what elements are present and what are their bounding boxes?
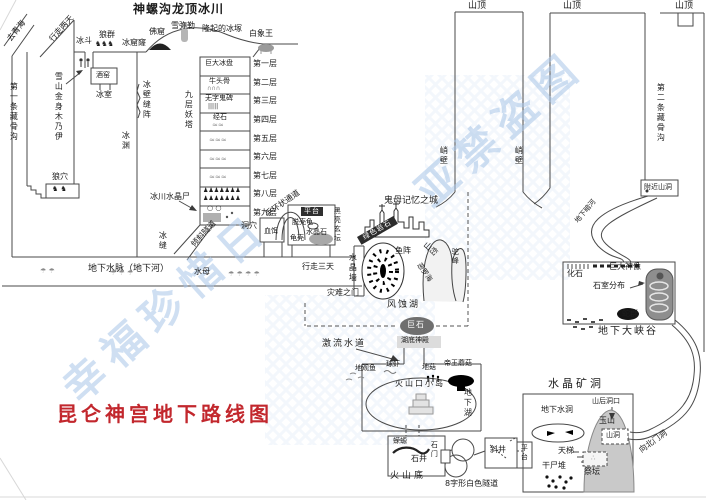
underground-lake-label: 地下湖 xyxy=(463,388,471,418)
ghost-city-label: 鬼母记忆之城 xyxy=(384,197,438,206)
floor8-icons-1: ♟♟♟♟♟♟♟ xyxy=(203,188,241,194)
altar-label: 祭坛 xyxy=(584,468,600,476)
ground-fish-label: 地观鱼 xyxy=(355,365,376,372)
floor1-item: 巨大冰盘 xyxy=(205,60,233,67)
cliff-label-1: 峭壁 xyxy=(439,146,447,166)
crater-island-label: 火山口小岛 xyxy=(395,380,445,388)
map-title: 昆仑神宫地下路线图 xyxy=(57,404,273,425)
floor3-item: 无字鬼碑 xyxy=(205,95,233,102)
shell-turtle-label: 脱壳龟 xyxy=(292,219,313,226)
jellyfish-icons-3: ☂ ☂ xyxy=(40,268,55,275)
mountain-cave-label: 山洞 xyxy=(606,432,620,439)
white-elephant-label: 白象王 xyxy=(249,30,273,38)
black-altar-label: 黑亮玄坛 xyxy=(333,207,340,243)
ice-abyss-label: 冰渊 xyxy=(121,131,129,151)
floor6-icons: ≈≈≈ xyxy=(209,156,227,163)
cirque-label: 冰斗 xyxy=(76,37,92,45)
floor6-label: 第六层 xyxy=(253,153,277,161)
lake-temple-label: 湖底神殿 xyxy=(401,337,429,344)
route-map-page: 去青海神螺沟龙顶冰川行走两天冰斗狼群♞♞♞冰窟窿佛窟雪弥勒隆起的冰塚白象王山顶山… xyxy=(0,0,706,500)
summit-label-1: 山顶 xyxy=(468,2,486,11)
jellyfish-icons-2: ☂ ☂ ☂ ☂ xyxy=(228,271,260,278)
snakes-label: 蛇群 xyxy=(622,310,638,318)
fish-array-label: 鱼阵 xyxy=(395,247,411,255)
floor1-label: 第一层 xyxy=(253,60,277,68)
snow-maitreya-label: 雪弥勒 xyxy=(171,22,195,30)
platform-label-2: 平台 xyxy=(520,444,527,462)
wolf-pack-icons: ♞♞♞ xyxy=(95,41,114,48)
platform-label-1: 平台 xyxy=(301,207,323,216)
ball-shrimp-label: 球虾 xyxy=(386,361,400,368)
volcano-bottom-label: 火山底 xyxy=(390,472,426,481)
giant-statue-label: 巨大神像 xyxy=(609,263,641,271)
walk-three-days-label: 行走三天 xyxy=(302,263,334,271)
summit-label-2: 山顶 xyxy=(563,2,581,11)
emperor-mushroom-label: 帝王蘑菇 xyxy=(444,360,472,367)
jellyfish-label: 水母 xyxy=(194,268,210,276)
glacier-title: 神螺沟龙顶冰川 xyxy=(133,3,224,16)
floor8-label: 第八层 xyxy=(253,190,277,198)
wolf-den-icons: ♞ ♞ xyxy=(52,186,67,193)
water-cave-label: 地下水洞 xyxy=(541,406,573,414)
jellyfish-icons-1: ☂ ☂ ☂ xyxy=(110,270,133,277)
wolf-den-label: 狼穴 xyxy=(52,173,68,181)
camel-hump-label: 驼峰 xyxy=(451,248,458,266)
altar-icons: ∴ xyxy=(591,455,595,462)
jade-mountain-label: 玉山 xyxy=(599,417,615,425)
floor7-label: 第七层 xyxy=(253,172,277,180)
ice-wall-cracks-label: 冰壁缝阵 xyxy=(142,80,150,120)
boulder-label: 巨石 xyxy=(407,321,425,329)
sky-ladder-label: 天梯 xyxy=(558,447,574,455)
floor4-icons: ≈≈ xyxy=(212,122,224,129)
ground-mushroom-label: 地菇 xyxy=(422,364,436,371)
grand-canyon-label: 地下大峡谷 xyxy=(598,327,658,338)
floor8-icons-2: ♟♟♟♟♟♟♟ xyxy=(203,196,241,202)
mummy-label: 雪山金身木乃伊 xyxy=(54,72,62,142)
ice-room-label: 冰室 xyxy=(96,91,112,99)
wind-lake-label: 风蚀湖 xyxy=(387,301,420,310)
wine-cellar-label: 酒窑 xyxy=(96,72,110,79)
summit-label-3: 山顶 xyxy=(675,2,693,11)
nine-tower-label: 九层妖塔 xyxy=(184,90,192,130)
floor3-icons: ||||| xyxy=(208,104,218,110)
floor2-label: 第二层 xyxy=(253,79,277,87)
ice-hole-label: 冰窟窿 xyxy=(122,39,146,47)
floor2-icons: ∩∩∩ xyxy=(207,86,220,92)
stone-well-label: 石井 xyxy=(411,455,427,463)
crystal-wall-label: 水晶墙 xyxy=(348,253,356,283)
nearby-cave-label: 附近山洞 xyxy=(644,184,672,191)
wolf-pack-label: 狼群 xyxy=(99,31,115,39)
disaster-gate-label: 灾难之门 xyxy=(327,289,359,297)
cave-label: 洞穴 xyxy=(241,222,257,230)
first-bone-gully-label: 第一条藏骨沟 xyxy=(9,82,17,142)
fossil-label: 化石 xyxy=(567,270,583,278)
crystal-stone-label: 水晶石 xyxy=(306,229,327,236)
stone-gate-label: 石门 xyxy=(430,441,437,459)
torrent-label: 激流水道 xyxy=(322,340,366,349)
chambers-label: 石室分布 xyxy=(593,282,625,290)
raised-ice-label: 隆起的冰塚 xyxy=(202,25,242,33)
floor9-icons: ○ ○ xyxy=(207,205,221,212)
turtle-shell-label: 龟壳 xyxy=(290,235,304,242)
floor7-icons: ≈≈≈ xyxy=(209,174,227,181)
blood-bait-label: 血饵 xyxy=(264,228,278,235)
buddha-grotto-label: 佛窟 xyxy=(149,28,165,36)
salamander-label: 蝾螈 xyxy=(393,438,407,445)
inclined-shaft-label: 斜井 xyxy=(490,446,506,454)
back-mouth-label: 山后洞口 xyxy=(592,398,620,405)
crystal-mine-label: 水晶矿洞 xyxy=(548,378,604,390)
corpse-pile-label: 干尸堆 xyxy=(542,462,566,470)
floor4-label: 第四层 xyxy=(253,116,277,124)
cliff-label-2: 峭壁 xyxy=(514,146,522,166)
floor5-icons: ≈≈≈ xyxy=(209,137,227,144)
ice-crevice-label: 冰缝 xyxy=(158,231,166,251)
crystal-corpse-label: 冰川水晶尸 xyxy=(150,193,190,201)
tunnel8-label: 8字形白色隧道 xyxy=(445,480,498,488)
second-bone-gully-label: 第二条藏骨沟 xyxy=(656,83,664,143)
floor3-label: 第三层 xyxy=(253,97,277,105)
floor5-label: 第五层 xyxy=(253,135,277,143)
